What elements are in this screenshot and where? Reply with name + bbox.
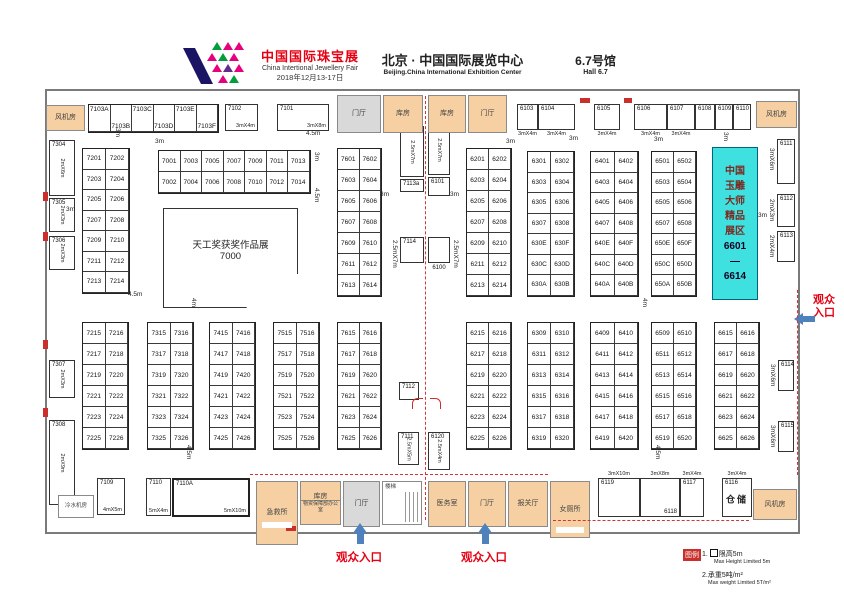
room-stairs: 楼梯 [382, 481, 422, 525]
booth-7307: 73072mX3m [49, 360, 75, 398]
booth-7226: 7226 [106, 428, 129, 449]
booth-dim-7308: 2mX9m [59, 453, 65, 472]
booth-7608: 7608 [360, 212, 382, 233]
arrow-shaft [482, 533, 489, 544]
booth-label-7101: 7101 [280, 106, 293, 112]
booth-6206: 6206 [489, 191, 511, 212]
booth-7103E: 7103E [175, 105, 197, 132]
booth-7622: 7622 [360, 386, 382, 407]
door-opening [262, 522, 292, 528]
booth-6415: 6415 [591, 386, 615, 407]
booth-7110: 71105mX4m [146, 478, 171, 516]
booth-block-7200-lower: 7215721672177218721972207221722272237224… [82, 322, 129, 450]
legend-item2-cn: 2.承重5吨/m² [702, 570, 743, 580]
booth-6417: 6417 [591, 407, 615, 428]
booth-6316: 6316 [551, 386, 574, 407]
booth-6516: 6516 [674, 386, 696, 407]
booth-6410: 6410 [615, 323, 639, 344]
booth-dim-7111: 2.5mX5m [406, 437, 412, 461]
booth-7315: 7315 [148, 323, 171, 344]
booth-7416: 7416 [233, 323, 256, 344]
booth-6515: 6515 [652, 386, 674, 407]
booth-7523: 7523 [274, 407, 297, 428]
booth-6115: 6115 [778, 421, 794, 452]
booth-6304: 6304 [551, 173, 574, 194]
booth-label-6111: 6111 [780, 141, 792, 147]
booth-7211: 7211 [83, 252, 106, 273]
booth-7419: 7419 [210, 365, 233, 386]
dimension-label: 3m [155, 138, 164, 145]
booth-7611: 7611 [338, 254, 360, 275]
booth-block-6300-lower: 6309631063116312631363146315631663176318… [527, 322, 575, 450]
booth-label-6116: 6116 [725, 480, 738, 486]
booth-640F: 640F [615, 234, 639, 255]
door-swing-icon [412, 398, 423, 409]
booth-7221: 7221 [83, 386, 106, 407]
booth-6619: 6619 [715, 365, 737, 386]
booth-6420: 6420 [615, 428, 639, 449]
height-limit-square-icon [710, 549, 718, 557]
booth-6520: 6520 [674, 428, 696, 449]
booth-6116: 6116仓储3mX4m [722, 478, 752, 517]
booth-7518: 7518 [297, 344, 320, 365]
room-fan-room-top-right: 风机房 [756, 101, 797, 128]
room-label-lobby-top-gray: 门厅 [352, 110, 366, 118]
room-label-chiller-room: 冷水机房 [65, 503, 87, 509]
booth-6414: 6414 [615, 365, 639, 386]
booth-7308: 73082mX9m [49, 420, 75, 505]
booth-7225: 7225 [83, 428, 106, 449]
booth-7209: 7209 [83, 231, 106, 252]
booth-dim-7109: 4mX5m [103, 507, 122, 513]
dimension-label: 3mX6m [769, 425, 776, 447]
booth-7111: 71112.5mX5m [398, 432, 419, 465]
booth-7318: 7318 [171, 344, 194, 365]
booth-7005: 7005 [202, 151, 224, 172]
booth-6312: 6312 [551, 344, 574, 365]
room-label-womens-toilet: 女厕所 [560, 506, 581, 514]
booth-6215: 6215 [467, 323, 489, 344]
booth-label-7307: 7307 [52, 362, 65, 368]
booth-7624: 7624 [360, 407, 382, 428]
booth-label-7308: 7308 [52, 422, 65, 428]
booth-6106: 61063mX4m [634, 104, 667, 130]
booth-dim-6102: 2.5mX7m [436, 138, 442, 162]
legend-item1: 1. 限高5m [702, 549, 743, 559]
dimension-label: 3m [654, 136, 663, 143]
booth-7619: 7619 [338, 365, 360, 386]
booth-7214: 7214 [106, 272, 129, 293]
stairs-stripes-icon [402, 492, 419, 522]
booth-dim-7306: 2mX3m [59, 244, 65, 263]
booth-label-6108: 6108 [698, 106, 711, 112]
booth-6109: 6109 [715, 104, 733, 130]
booth-6418: 6418 [615, 407, 639, 428]
booth-label-6104: 6104 [541, 106, 554, 112]
booth-6225: 6225 [467, 428, 489, 449]
door-opening [556, 527, 584, 533]
booth-7224: 7224 [106, 407, 129, 428]
door-marker [43, 232, 48, 241]
booth-6318: 6318 [551, 407, 574, 428]
booth-6510: 6510 [674, 323, 696, 344]
booth-block-6200-lower: 6215621662176218621962206221622262236224… [466, 322, 512, 450]
booth-6306: 6306 [551, 193, 574, 214]
booth-6507: 6507 [652, 214, 674, 235]
room-chiller-room: 冷水机房 [58, 495, 94, 518]
booth-7004: 7004 [181, 172, 203, 193]
booth-label-7102: 7102 [228, 106, 241, 112]
booth-label-7304: 7304 [52, 142, 65, 148]
room-storage-top-1: 库房 [383, 95, 423, 133]
booth-dim-7305: 2mX3m [59, 206, 65, 225]
booth-7215: 7215 [83, 323, 106, 344]
booth-6419: 6419 [591, 428, 615, 449]
dimension-label: 4m [190, 298, 197, 307]
jade-zone-line: 6614 [724, 269, 746, 284]
dimension-label: 2.5mX7m [391, 240, 398, 268]
booth-dim-6119: 3mX10m [608, 471, 630, 477]
booth-7323: 7323 [148, 407, 171, 428]
booth-block-7200-upper: 7201720272037204720572067207720872097210… [82, 148, 130, 294]
dimension-label: 3m [758, 212, 767, 219]
booth-dim-7307: 2mX3m [59, 370, 65, 389]
booth-7320: 7320 [171, 365, 194, 386]
room-label-storage-top-1: 库房 [396, 110, 410, 118]
booth-dim-7102: 3mX4m [236, 123, 255, 129]
booth-7613: 7613 [338, 275, 360, 296]
booth-block-6300-upper: 63016302630363046305630663076308630E630F… [527, 151, 575, 297]
dimension-label: 4.5m [185, 445, 192, 459]
door-marker [43, 192, 48, 201]
booth-label-6106: 6106 [637, 106, 650, 112]
booth-label-6103: 6103 [520, 106, 533, 112]
booth-dim-7110: 5mX4m [149, 508, 168, 514]
booth-7524: 7524 [297, 407, 320, 428]
booth-6208: 6208 [489, 212, 511, 233]
booth-bigword-6116: 仓储 [726, 493, 748, 506]
booth-block-7300-lower: 7315731673177318731973207321732273237324… [147, 322, 194, 450]
booth-6508: 6508 [674, 214, 696, 235]
room-storage-top-2: 库房 [428, 95, 466, 133]
booth-6120: 61202.5mX4m [428, 432, 450, 470]
booth-label-6107: 6107 [670, 106, 683, 112]
booth-7617: 7617 [338, 344, 360, 365]
booth-6209: 6209 [467, 233, 489, 254]
arrow-head [794, 313, 803, 325]
booth-label-6115: 6115 [781, 423, 794, 429]
booth-6406: 6406 [615, 193, 639, 214]
room-label-lobby-bottom-left: 门厅 [355, 500, 369, 508]
booth-6319: 6319 [528, 428, 551, 449]
booth-7516: 7516 [297, 323, 320, 344]
booth-dim-6105: 3mX4m [598, 131, 617, 137]
booth-7603: 7603 [338, 170, 360, 191]
booth-6311: 6311 [528, 344, 551, 365]
booth-6301: 6301 [528, 152, 551, 173]
booth-6517: 6517 [652, 407, 674, 428]
dimension-label: 3m [506, 138, 515, 145]
booth-6113: 6113 [777, 231, 795, 262]
booth-6618: 6618 [737, 344, 759, 365]
booth-block-6600-lower: 6615661666176618661966206621662266236624… [714, 322, 760, 450]
booth-7325: 7325 [148, 428, 171, 449]
booth-7604: 7604 [360, 170, 382, 191]
booth-6117: 61173mX4m [680, 478, 704, 517]
legend-item2-en: Max weight Limited 5T/m² [708, 580, 771, 586]
booth-6513: 6513 [652, 365, 674, 386]
booth-7217: 7217 [83, 344, 106, 365]
booth-6626: 6626 [737, 428, 759, 449]
booth-650E: 650E [652, 234, 674, 255]
room-fan-room-top-left: 风机房 [46, 105, 85, 131]
booth-6307: 6307 [528, 214, 551, 235]
booth-640A: 640A [591, 275, 615, 296]
booth-6205: 6205 [467, 191, 489, 212]
door-marker [580, 98, 590, 103]
room-label-first-aid-room: 急救所 [267, 509, 288, 517]
booth-6108: 6108 [695, 104, 715, 130]
booth-label-7110A: 7110A [176, 481, 193, 487]
booth-6622: 6622 [737, 386, 759, 407]
dimension-label: 3m [66, 206, 75, 213]
booth-7422: 7422 [233, 386, 256, 407]
booth-label-7114: 7114 [403, 239, 416, 245]
room-label-fan-room-bottom-right: 风机房 [765, 501, 786, 509]
booth-7607: 7607 [338, 212, 360, 233]
booth-7212: 7212 [106, 252, 129, 273]
jade-zone-line: 展区 [725, 224, 745, 239]
dimension-label: 3mX6m [768, 148, 775, 170]
booth-7415: 7415 [210, 323, 233, 344]
booth-7425: 7425 [210, 428, 233, 449]
booth-7521: 7521 [274, 386, 297, 407]
booth-7305: 73052mX3m [49, 198, 75, 232]
dimension-label: 3m [380, 191, 389, 198]
booth-7218: 7218 [106, 344, 129, 365]
visitor-entrance-right-label: 观众入口 [812, 294, 836, 319]
booth-7626: 7626 [360, 428, 382, 449]
booth-6509: 6509 [652, 323, 674, 344]
booth-dim-6116: 3mX4m [728, 471, 747, 477]
booth-6512: 6512 [674, 344, 696, 365]
zone-jade-masters-6601-6614: 中国玉雕大师精品展区6601—6614 [712, 147, 758, 300]
booth-6616: 6616 [737, 323, 759, 344]
booth-630B: 630B [551, 275, 574, 296]
booth-6511: 6511 [652, 344, 674, 365]
booth-block-6500-lower: 6509651065116512651365146515651665176518… [651, 322, 697, 450]
booth-7110A: 7110A5mX10m [172, 478, 250, 517]
booth-7306: 73062mX3m [49, 236, 75, 270]
booth-7618: 7618 [360, 344, 382, 365]
booth-block-6400-upper: 64016402640364046405640664076408640E640F… [590, 151, 639, 297]
booth-7620: 7620 [360, 365, 382, 386]
arrow-shaft [357, 533, 364, 544]
booth-6212: 6212 [489, 254, 511, 275]
booth-7519: 7519 [274, 365, 297, 386]
booth-7421: 7421 [210, 386, 233, 407]
booth-7102: 71023mX4m [225, 104, 258, 131]
booth-6114: 6114 [778, 360, 794, 391]
booth-7213: 7213 [83, 272, 106, 293]
booth-7609: 7609 [338, 233, 360, 254]
booth-block-6200-upper: 6201620262036204620562066207620862096210… [466, 148, 512, 297]
booth-6402: 6402 [615, 152, 639, 173]
booth-6506: 6506 [674, 193, 696, 214]
room-lobby-bottom-right: 门厅 [468, 481, 506, 527]
booth-6617: 6617 [715, 344, 737, 365]
booth-7317: 7317 [148, 344, 171, 365]
jade-zone-line: 精品 [725, 209, 745, 224]
booth-7304: 73042mX6m [49, 140, 75, 196]
booth-label-6114: 6114 [781, 362, 794, 368]
dimension-label: 2.5mX7m [452, 240, 459, 268]
booth-dim-7101: 3mX8m [307, 123, 326, 129]
visitor-entrance-bottom-right-label: 观众入口 [461, 549, 507, 565]
tiangong-title: 天工奖获奖作品展 [192, 237, 268, 251]
booth-630F: 630F [551, 234, 574, 255]
booth-6218: 6218 [489, 344, 511, 365]
booth-7526: 7526 [297, 428, 320, 449]
room-lobby-bottom-left: 门厅 [343, 481, 380, 527]
booth-6615: 6615 [715, 323, 737, 344]
booth-7003: 7003 [181, 151, 203, 172]
booth-6207: 6207 [467, 212, 489, 233]
booth-6220: 6220 [489, 365, 511, 386]
booth-7109: 71094mX5m [97, 478, 125, 515]
booth-7322: 7322 [171, 386, 194, 407]
dimension-label: 4.5m [306, 130, 320, 137]
booth-label-6109: 6109 [718, 106, 731, 112]
jade-zone-line: 中国 [725, 164, 745, 179]
booth-label-6100: 6100 [432, 265, 445, 271]
booth-650D: 650D [674, 255, 696, 276]
booth-7201: 7201 [83, 149, 106, 170]
room-label-lobby-top-orange: 门厅 [481, 110, 495, 118]
booth-6222: 6222 [489, 386, 511, 407]
booth-dim-6117: 3mX4m [683, 471, 702, 477]
room-first-aid-room: 急救所 [256, 481, 298, 545]
booth-6401: 6401 [591, 152, 615, 173]
booth-630C: 630C [528, 255, 551, 276]
booth-6310: 6310 [551, 323, 574, 344]
booth-7316: 7316 [171, 323, 194, 344]
booth-label-7109: 7109 [100, 480, 113, 486]
booth-6505: 6505 [652, 193, 674, 214]
arrow-shaft [803, 316, 815, 322]
booth-640C: 640C [591, 255, 615, 276]
booth-7216: 7216 [106, 323, 129, 344]
booth-dim-6104: 3mX4m [547, 131, 566, 137]
booth-7321: 7321 [148, 386, 171, 407]
booth-7610: 7610 [360, 233, 382, 254]
booth-6407: 6407 [591, 214, 615, 235]
legend-item1-cn: 限高5m [719, 551, 743, 558]
booth-6404: 6404 [615, 173, 639, 194]
arrow-head [353, 523, 367, 533]
booth-7001: 7001 [159, 151, 181, 172]
booth-6100: 6100 [428, 237, 450, 263]
room-label-fan-room-top-left: 风机房 [55, 114, 76, 122]
dimension-label: 4.5m [128, 291, 142, 298]
booth-6408: 6408 [615, 214, 639, 235]
booth-label-7113a: 7113a [403, 181, 419, 187]
booth-630D: 630D [551, 255, 574, 276]
booth-6104: 61043mX4m [538, 104, 575, 130]
room-customs-hall: 报关厅 [508, 481, 548, 527]
jade-zone-line: 玉雕 [725, 179, 745, 194]
booth-6303: 6303 [528, 173, 551, 194]
booth-label-6112: 6112 [780, 196, 793, 202]
booth-6514: 6514 [674, 365, 696, 386]
booth-6211: 6211 [467, 254, 489, 275]
booth-7220: 7220 [106, 365, 129, 386]
booth-7418: 7418 [233, 344, 256, 365]
booth-7623: 7623 [338, 407, 360, 428]
booth-7426: 7426 [233, 428, 256, 449]
booth-7002: 7002 [159, 172, 181, 193]
booth-7207: 7207 [83, 211, 106, 232]
booth-6210: 6210 [489, 233, 511, 254]
booth-7113: 71132.5mX7m [400, 126, 424, 177]
room-medical-room: 医务室 [428, 481, 466, 527]
room-label-customs-hall: 报关厅 [518, 500, 539, 508]
booth-6409: 6409 [591, 323, 615, 344]
booth-640B: 640B [615, 275, 639, 296]
booth-block-6400-lower: 6409641064116412641364146415641664176418… [590, 322, 639, 450]
booth-6204: 6204 [489, 170, 511, 191]
booth-label-7110: 7110 [149, 480, 162, 486]
visitor-entrance-bottom-right-arrow-icon [478, 523, 492, 544]
booth-7114: 7114 [400, 237, 424, 263]
legend-item1-no: 1. [702, 551, 708, 558]
booth-6201: 6201 [467, 149, 489, 170]
booth-640D: 640D [615, 255, 639, 276]
booth-7008: 7008 [224, 172, 246, 193]
booth-7010: 7010 [245, 172, 267, 193]
booth-6221: 6221 [467, 386, 489, 407]
booth-7000-tiangong: 天工奖获奖作品展7000 [163, 208, 298, 308]
booth-6224: 6224 [489, 407, 511, 428]
legend-title-badge: 图例 [683, 549, 701, 561]
booth-label-6118: 6118 [664, 509, 677, 515]
booth-dim-6103: 3mX4m [518, 131, 537, 137]
booth-block-7103-strip: 7103A7103B7103C7103D7103E7103F [88, 104, 219, 133]
booth-block-7400-lower: 7415741674177418741974207421742274237424… [209, 322, 256, 450]
booth-6621: 6621 [715, 386, 737, 407]
fire-lane-bottom-left [250, 474, 548, 475]
booth-6518: 6518 [674, 407, 696, 428]
room-sublabel-storage-office: 物资保障部办公室 [301, 500, 340, 513]
booth-7517: 7517 [274, 344, 297, 365]
booth-7103C: 7103C [132, 105, 154, 132]
room-label-lobby-bottom-right: 门厅 [480, 500, 494, 508]
room-label-stairs: 楼梯 [383, 482, 398, 492]
booth-650F: 650F [674, 234, 696, 255]
booth-6305: 6305 [528, 193, 551, 214]
jade-zone-line: 大师 [725, 194, 745, 209]
booth-dim-6107: 3mX4m [672, 131, 691, 137]
door-marker [624, 98, 632, 103]
booth-7606: 7606 [360, 191, 382, 212]
dimension-label: 4.5m [654, 445, 661, 459]
door-swing-icon [430, 398, 441, 409]
dimension-label: 3m [114, 128, 121, 137]
room-lobby-top-orange: 门厅 [468, 95, 507, 133]
booth-6413: 6413 [591, 365, 615, 386]
booth-label-7112: 7112 [402, 384, 415, 390]
booth-6416: 6416 [615, 386, 639, 407]
